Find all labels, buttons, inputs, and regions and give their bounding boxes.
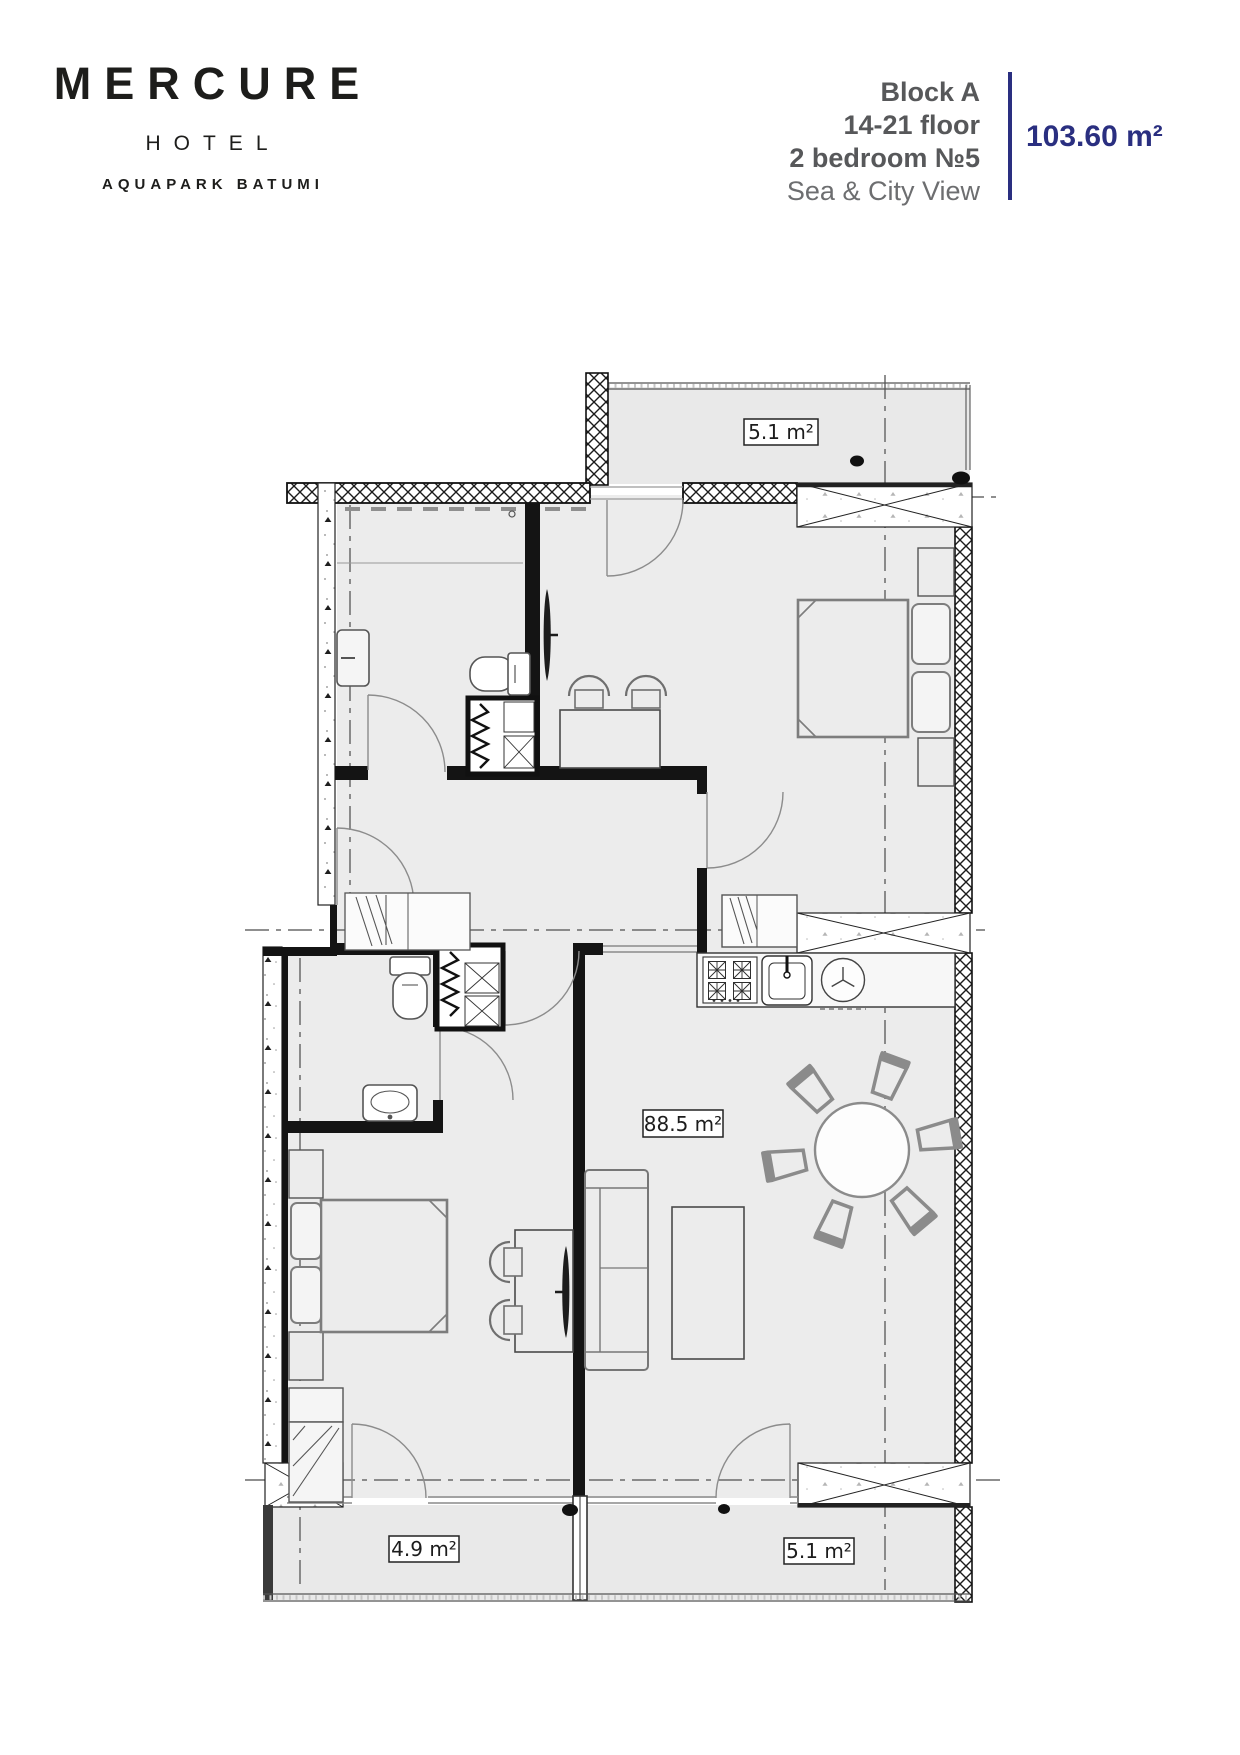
xbox-right-kitchen [797, 913, 970, 953]
nightstand [918, 738, 954, 786]
label-balcony-top: 5.1 m² [744, 419, 818, 445]
svg-text:88.5 m²: 88.5 m² [644, 1112, 722, 1136]
nightstand [289, 1150, 323, 1198]
svg-text:5.1 m²: 5.1 m² [748, 420, 814, 444]
toilet-1 [470, 653, 530, 695]
svg-text:5.1 m²: 5.1 m² [786, 1539, 852, 1563]
toilet-2 [390, 957, 430, 1019]
sofa [585, 1170, 648, 1370]
floor-plan-drawing: 5.1 m² 88.5 m² 4.9 m² 5.1 m² [0, 0, 1240, 1755]
svg-text:4.9 m²: 4.9 m² [391, 1537, 457, 1561]
nightstand [918, 548, 954, 596]
xbox-top-right [797, 483, 972, 527]
nightstand [289, 1332, 323, 1380]
dresser [289, 1388, 343, 1422]
xbox-bottom-right [798, 1463, 970, 1507]
bedroom1-wardrobe [722, 895, 797, 947]
shaft-upper [468, 698, 537, 774]
entry-closet [345, 893, 470, 950]
bed-2 [291, 1200, 447, 1332]
stove [703, 957, 757, 1003]
kitchen-sink [762, 956, 812, 1005]
label-balcony-bottom-right: 5.1 m² [784, 1538, 854, 1564]
floor-plan-page: MERCURE HOTEL AQUAPARK BATUMI Block A 14… [0, 0, 1240, 1755]
kitchen [697, 953, 955, 1009]
desk-1 [560, 710, 660, 768]
shaft-lower [437, 945, 503, 1029]
label-living: 88.5 m² [643, 1110, 723, 1137]
closet [289, 1422, 343, 1502]
label-balcony-bottom-left: 4.9 m² [389, 1536, 459, 1562]
coffee-table [672, 1207, 744, 1359]
sink-2 [363, 1085, 417, 1121]
dining-table [815, 1103, 909, 1197]
